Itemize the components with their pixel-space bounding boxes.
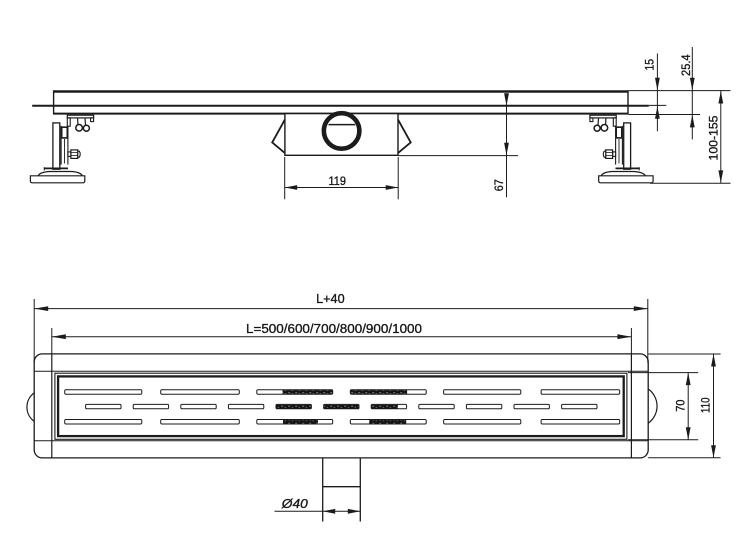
- svg-text:15: 15: [642, 59, 656, 71]
- svg-text:Ø40: Ø40: [281, 496, 309, 511]
- svg-text:25.4: 25.4: [679, 54, 693, 76]
- svg-text:110: 110: [699, 397, 713, 413]
- svg-text:119: 119: [328, 174, 346, 188]
- svg-text:70: 70: [673, 399, 687, 411]
- svg-text:67: 67: [492, 179, 506, 191]
- svg-text:L+40: L+40: [316, 291, 345, 306]
- svg-text:100-155: 100-155: [706, 115, 720, 160]
- svg-text:L=500/600/700/800/900/1000: L=500/600/700/800/900/1000: [246, 321, 422, 336]
